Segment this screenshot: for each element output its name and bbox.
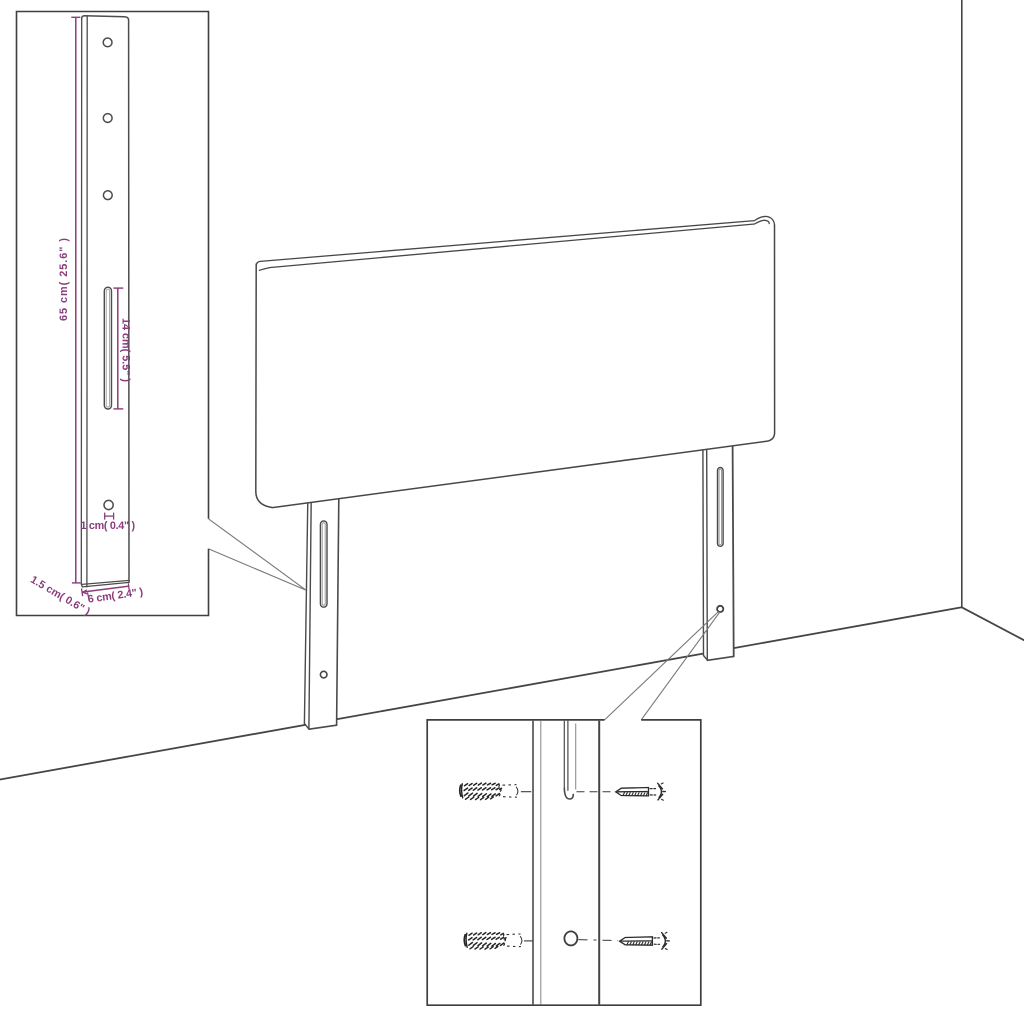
svg-text:65 cm( 25.6" ): 65 cm( 25.6" ) <box>58 237 70 321</box>
svg-text:14 cm( 5.5" ): 14 cm( 5.5" ) <box>119 318 131 382</box>
svg-text:1 cm( 0.4" ): 1 cm( 0.4" ) <box>81 520 136 532</box>
